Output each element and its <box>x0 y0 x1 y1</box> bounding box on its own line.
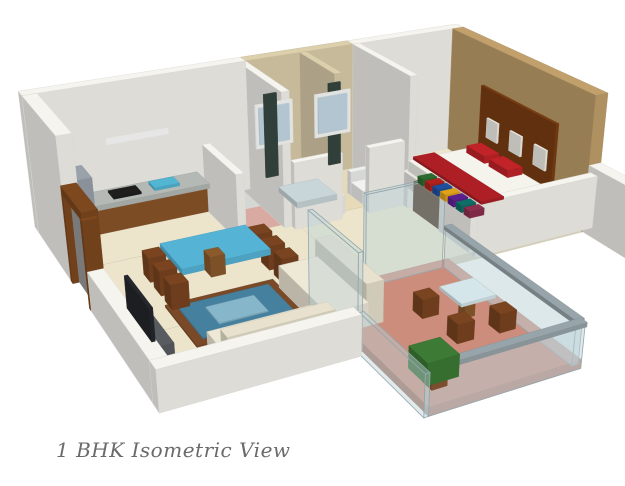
shower-panel-1 <box>263 92 278 178</box>
bath-window-glass-2 <box>318 93 347 134</box>
isometric-floorplan-render: 1 BHK Isometric View <box>0 0 625 486</box>
caption: 1 BHK Isometric View <box>56 438 316 462</box>
floorplan-3d-scene <box>0 0 625 486</box>
